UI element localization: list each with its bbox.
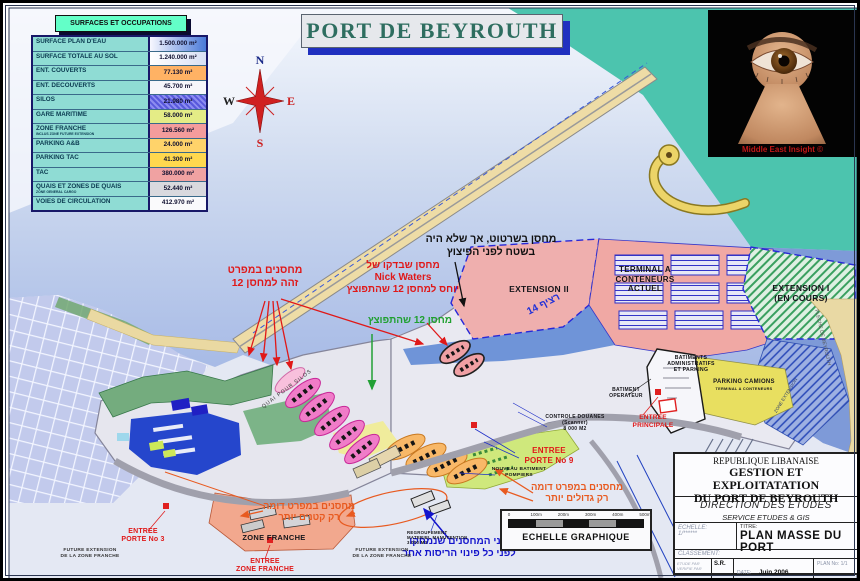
watermark-caption: Middle East Insight © [708,145,857,154]
legend-row-label: PARKING A&B [33,139,148,153]
legend-row: SURFACE PLAN D'EAU1.500.000 m² [33,37,206,51]
legend-row-label: ZONE FRANCHEINCLUS ZONE FUTURE EXTENSION [33,124,148,138]
scalebar-segment [509,520,536,527]
legend-row: TAC380.000 m² [33,167,206,182]
legend-row-label: GARE MARITIME [33,110,148,124]
legend-row-label: ENT. COUVERTS [33,66,148,80]
legend-row-value: 126.560 m² [148,124,206,138]
title-block-service: SERVICE ETUDES & GIS [675,513,857,522]
legend-row-label: PARKING TAC [33,153,148,167]
label-parking-camions-sub: TERMINAL A CONTENEURS [703,387,785,392]
legend-row-label: TAC [33,168,148,182]
scalebar-tick: 300m [585,512,596,517]
legend-row: QUAIS ET ZONES DE QUAISZONE GENERAL CARG… [33,181,206,196]
scalebar-tick: 0 [508,512,511,517]
legend-row-label: SURFACE TOTALE AU SOL [33,52,148,66]
legend-row: ENT. COUVERTS77.130 m² [33,65,206,80]
label-terminal-actuel: TERMINAL A CONTENEURS ACTUEL [589,265,701,294]
legend-row: PARKING TAC41.300 m² [33,152,206,167]
annotation-warehouse-12: מחסן 12 שהתפוצץ [355,315,465,327]
title-block: REPUBLIQUE LIBANAISE GESTION ET EXPLOITA… [673,452,859,575]
legend-header: SURFACES ET OCCUPATIONS [55,15,187,32]
label-regroupement: REGROUPEMENT MATERIEL MANUTENTION 3 000 … [407,530,473,545]
scalebar-ticks: 0100m200m300m400m500m [502,511,650,519]
scalebar-tick: 100m [531,512,542,517]
legend-table-body: SURFACE PLAN D'EAU1.500.000 m²SURFACE TO… [31,35,208,212]
label-entree-porte-9: ENTREE PORTE No 9 [511,446,587,465]
scalebar-tick: 200m [558,512,569,517]
annotation-not-on-site: מחסן בשרטוט, אך שלא היה בשטח לפני הפיצוץ [399,233,583,258]
page-title: PORT DE BEYROUTH [301,14,563,48]
label-batiments-admin: BATIMENTS ADMINISTRATIFS ET PARKING [659,355,723,374]
legend-row-value: 77.130 m² [148,66,206,80]
scale-bar: 0100m200m300m400m500m ECHELLE GRAPHIQUE [500,509,652,551]
title-block-org1: GESTION ET EXPLOITATATION [675,466,857,492]
title-block-direction: DIRECTION DES ETUDES [675,500,857,511]
legend-row-label: SILOS [33,95,148,109]
compass-e: E [287,94,295,108]
legend-row-value: 24.000 m² [148,139,206,153]
date-value: Juin 2006 [759,569,789,576]
author-initials: S.R. [711,559,733,581]
legend-row-value: 1.240.000 m² [148,52,206,66]
legend-row-value: 45.700 m² [148,81,206,95]
annotation-nick-waters: מחסן שבדקו של Nick Waters יוחס למחסן 12 … [339,260,467,296]
legend-row-label: VOIES DE CIRCULATION [33,197,148,211]
label-entree-principale: ENTREE PRINCIPALE [621,414,685,430]
compass-w: W [223,94,235,108]
label-entree-porte-3: ENTREE PORTE No 3 [107,528,179,545]
label-future-extension-west: FUTURE EXTENSION DE LA ZONE FRANCHE [47,548,133,560]
label-batiment-operateur: BATIMENT OPERATEUR [601,387,651,399]
verifie-par-label: VERIFIE PAR [677,566,709,571]
legend-row: SURFACE TOTALE AU SOL1.240.000 m² [33,51,206,66]
legend-row: PARKING A&B24.000 m² [33,138,206,153]
legend-row-value: 21.980 m² [148,95,206,109]
legend-row: ZONE FRANCHEINCLUS ZONE FUTURE EXTENSION… [33,123,206,138]
legend-row: SILOS21.980 m² [33,94,206,109]
label-zone-franche: ZONE FRANCHE [229,533,319,542]
legend-panel: SURFACES ET OCCUPATIONS SURFACE PLAN D'E… [31,15,208,212]
plan-sheet: N S W E PORT DE BEYROUTH SURFACES ET OCC… [0,0,860,581]
scalebar-tick: 500m [639,512,650,517]
compass-n: N [256,53,265,67]
label-future-extension-center: FUTURE EXTENSION DE LA ZONE FRANCHE [339,548,425,560]
label-extension-1: EXTENSION I (EN COURS) [759,283,843,303]
legend-row: GARE MARITIME58.000 m² [33,109,206,124]
legend-row-value: 52.440 m² [148,182,206,196]
scalebar-label: ECHELLE GRAPHIQUE [502,532,650,542]
annotation-same-spec: מחסנים במפרט זהה למחסן 12 [215,264,315,289]
legend-row-value: 412.970 m² [148,197,206,211]
legend-row-label: SURFACE PLAN D'EAU [33,37,148,51]
scalebar-segment [536,520,563,527]
legend-row: ENT. DECOUVERTS45.700 m² [33,80,206,95]
label-nouveau-batiment: NOUVEAU BATIMENT POMPIERS [483,467,555,479]
legend-row-label: QUAIS ET ZONES DE QUAISZONE GENERAL CARG… [33,182,148,196]
scalebar-segment [616,520,643,527]
plan-no-label: PLAN No: [817,561,839,567]
keyhole-eye-image [708,10,857,157]
annotation-similar-bigger: מחסנים במפרט דומה רק גדולים יותר [527,482,627,505]
label-extension-2: EXTENSION II [503,284,575,294]
echelle-value: 1/****** [678,531,733,537]
scalebar-segment [563,520,590,527]
label-parking-camions: PARKING CAMIONS [703,379,785,386]
compass-s: S [257,136,264,150]
legend-row-value: 380.000 m² [148,168,206,182]
label-controle-douanes: CONTROLE DOUANES (Scanner) 8 000 M2 [537,414,613,432]
legend-row: VOIES DE CIRCULATION412.970 m² [33,196,206,211]
scalebar-segment [589,520,616,527]
date-label: DATE: [737,570,751,576]
annotation-similar-smaller: מחסנים במפרט דומה רק קטנים יותר [261,501,357,524]
legend-row-value: 41.300 m² [148,153,206,167]
keyhole-eye-watermark: Middle East Insight © [708,10,857,157]
legend-row-value: 58.000 m² [148,110,206,124]
scalebar-bar [508,519,644,528]
label-entree-zone-franche: ENTREE ZONE FRANCHE [225,558,305,575]
classement-label: CLASSEMENT: [675,550,857,559]
plan-no-value: 1/1 [841,561,848,567]
scalebar-tick: 400m [612,512,623,517]
legend-row-label: ENT. DECOUVERTS [33,81,148,95]
legend-row-value: 1.500.000 m² [148,37,206,51]
